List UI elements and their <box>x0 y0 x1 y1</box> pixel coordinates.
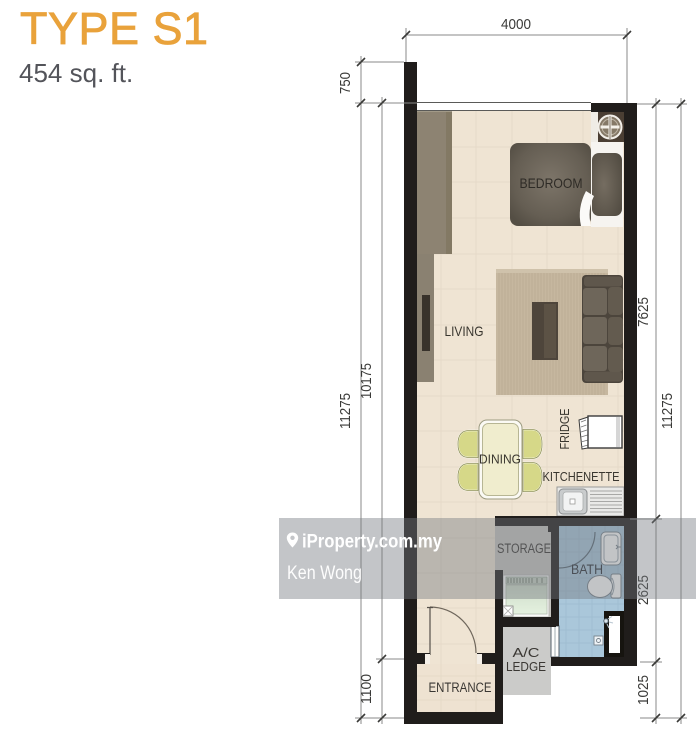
svg-text:4000: 4000 <box>501 16 531 33</box>
svg-text:750: 750 <box>337 72 354 94</box>
svg-text:ENTRANCE: ENTRANCE <box>429 680 492 695</box>
svg-text:KITCHENETTE: KITCHENETTE <box>543 469 620 484</box>
svg-text:11275: 11275 <box>659 393 676 429</box>
svg-text:Ken Wong: Ken Wong <box>287 563 362 584</box>
svg-text:A/C: A/C <box>513 645 540 660</box>
svg-text:7625: 7625 <box>635 297 652 327</box>
svg-text:10175: 10175 <box>358 363 375 399</box>
svg-text:DINING: DINING <box>479 453 521 467</box>
svg-text:LEDGE: LEDGE <box>506 659 546 674</box>
svg-text:1100: 1100 <box>358 674 375 704</box>
svg-text:iProperty.com.my: iProperty.com.my <box>302 532 442 553</box>
svg-text:FRIDGE: FRIDGE <box>557 408 572 449</box>
svg-text:BEDROOM: BEDROOM <box>520 175 583 191</box>
svg-text:11275: 11275 <box>337 393 354 429</box>
svg-text:LIVING: LIVING <box>445 323 484 339</box>
svg-text:1025: 1025 <box>635 675 652 705</box>
